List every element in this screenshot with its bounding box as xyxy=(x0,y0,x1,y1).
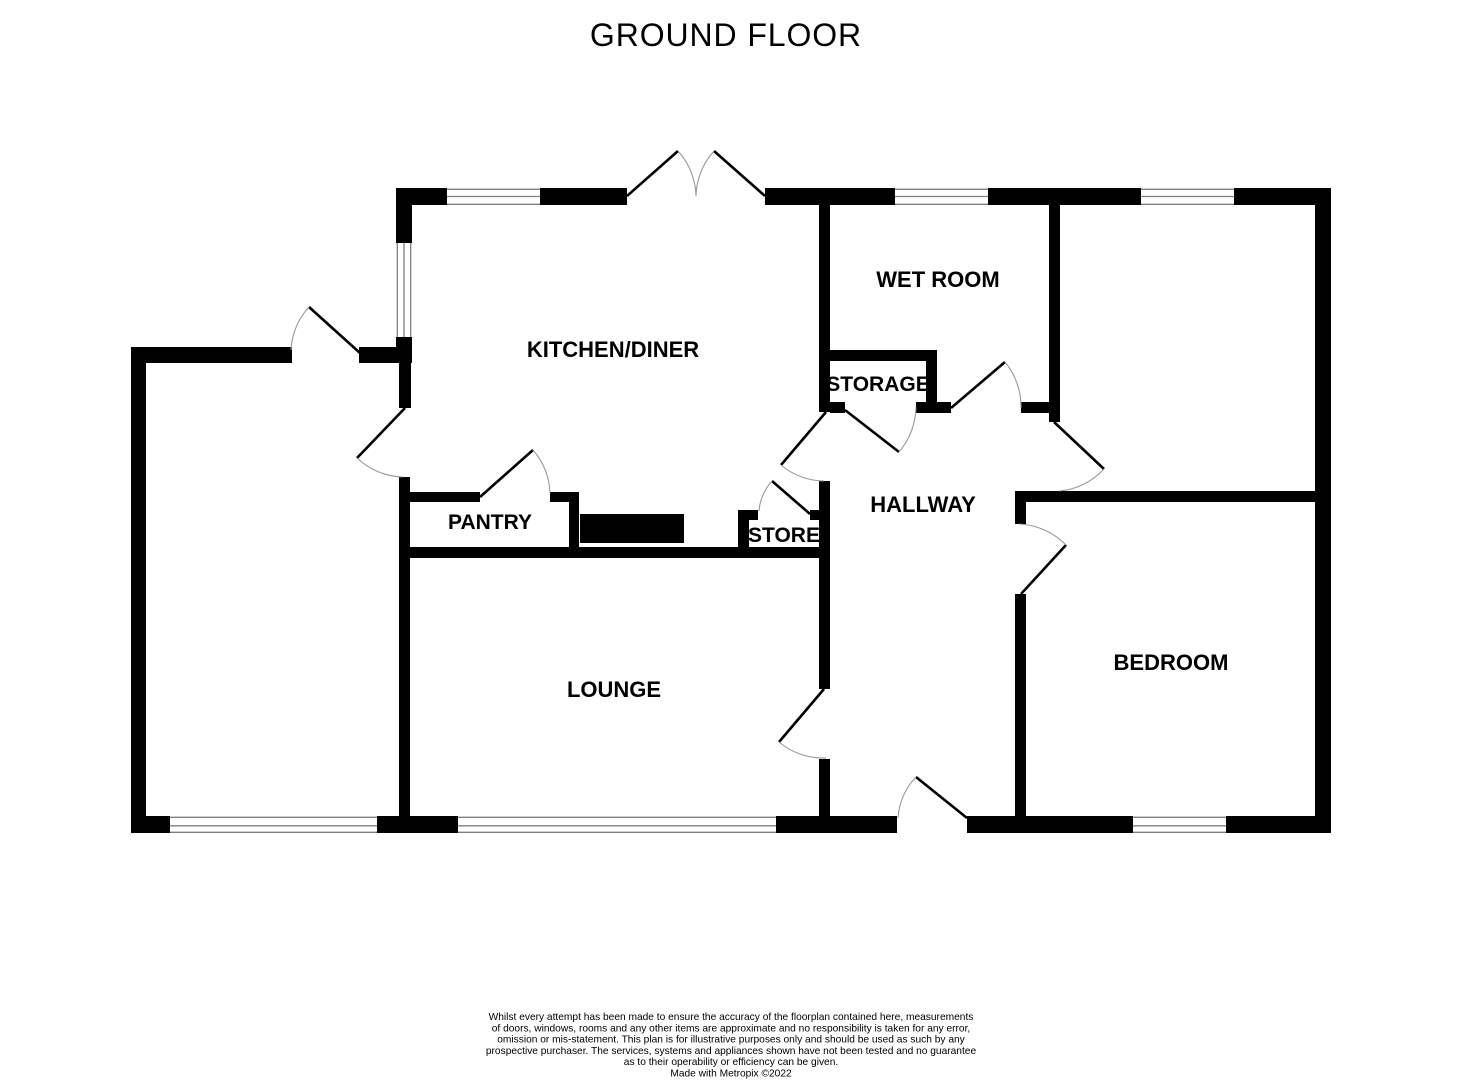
svg-text:STORAGE: STORAGE xyxy=(826,373,929,396)
svg-text:WET ROOM: WET ROOM xyxy=(876,267,999,292)
svg-text:LOUNGE: LOUNGE xyxy=(567,677,661,702)
svg-text:KITCHEN/DINER: KITCHEN/DINER xyxy=(527,337,699,362)
svg-text:PANTRY: PANTRY xyxy=(448,511,532,534)
svg-text:Whilst every attempt has been: Whilst every attempt has been made to en… xyxy=(489,1012,974,1023)
svg-text:STORE: STORE xyxy=(748,524,820,547)
svg-text:HALLWAY: HALLWAY xyxy=(870,492,976,517)
svg-text:Made with Metropix ©2022: Made with Metropix ©2022 xyxy=(670,1069,792,1080)
svg-text:omission or mis-statement. Thi: omission or mis-statement. This plan is … xyxy=(497,1035,965,1046)
svg-text:GROUND FLOOR: GROUND FLOOR xyxy=(590,17,862,53)
svg-text:BEDROOM: BEDROOM xyxy=(1114,650,1229,675)
svg-text:as to their operability or eff: as to their operability or efficiency ca… xyxy=(624,1057,838,1068)
svg-text:prospective purchaser. The ser: prospective purchaser. The services, sys… xyxy=(486,1046,977,1057)
svg-text:of doors, windows, rooms and a: of doors, windows, rooms and any other i… xyxy=(492,1023,970,1034)
